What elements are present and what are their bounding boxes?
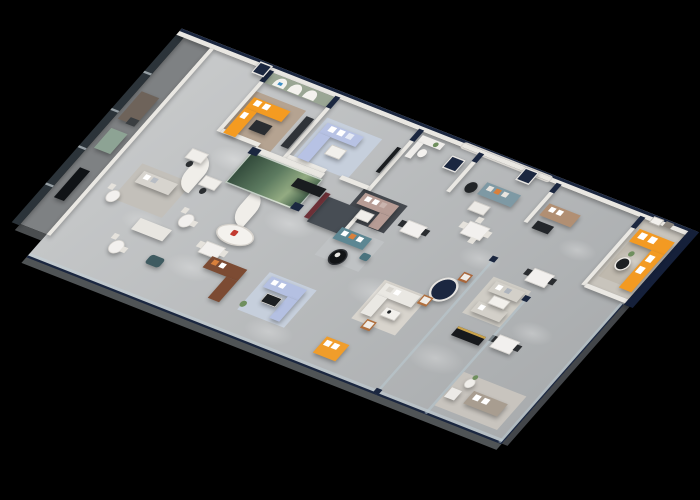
showroom-render-canvas <box>0 0 700 500</box>
isometric-floor-plan <box>27 48 685 444</box>
